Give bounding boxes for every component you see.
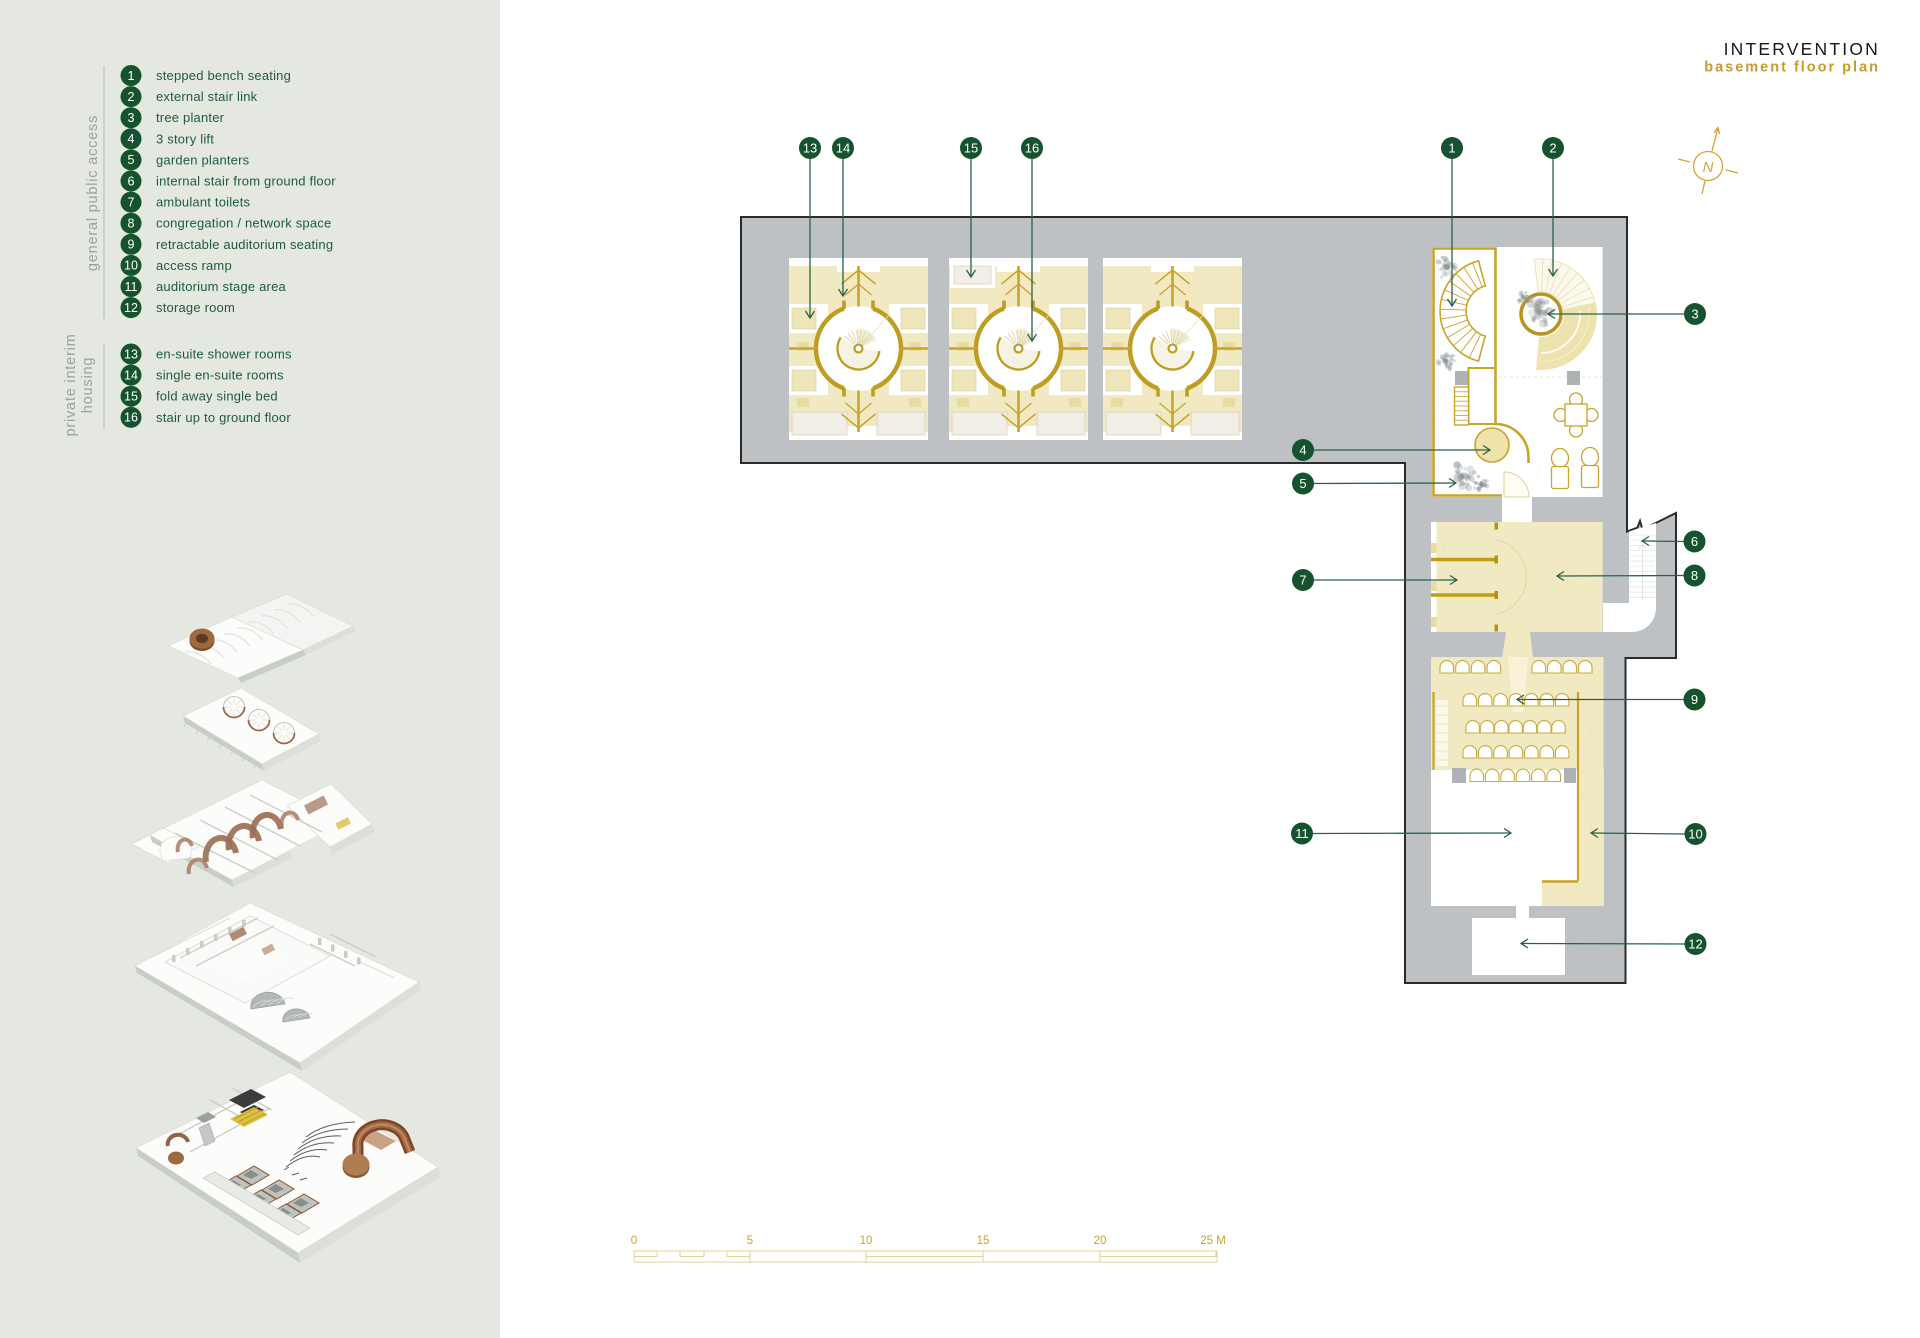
svg-text:13: 13 xyxy=(124,347,138,361)
svg-text:12: 12 xyxy=(124,301,138,315)
svg-text:16: 16 xyxy=(1025,141,1039,156)
svg-text:N: N xyxy=(1703,159,1714,176)
svg-text:2: 2 xyxy=(1549,141,1556,156)
svg-text:14: 14 xyxy=(124,368,138,382)
svg-text:5: 5 xyxy=(1299,476,1306,491)
svg-text:20: 20 xyxy=(1094,1235,1107,1247)
svg-text:congregation / network space: congregation / network space xyxy=(156,216,331,231)
svg-text:external stair link: external stair link xyxy=(156,89,258,104)
svg-text:stepped bench seating: stepped bench seating xyxy=(156,68,291,83)
svg-text:9: 9 xyxy=(128,238,135,252)
svg-text:15: 15 xyxy=(977,1235,990,1247)
svg-text:stair up to ground floor: stair up to ground floor xyxy=(156,410,291,425)
svg-text:14: 14 xyxy=(836,141,850,156)
svg-text:retractable auditorium seating: retractable auditorium seating xyxy=(156,237,333,252)
svg-text:11: 11 xyxy=(1295,826,1309,841)
svg-text:housing: housing xyxy=(80,357,96,413)
svg-text:INTERVENTION: INTERVENTION xyxy=(1724,39,1880,59)
svg-text:4: 4 xyxy=(1299,443,1306,458)
svg-text:fold away single bed: fold away single bed xyxy=(156,389,278,404)
svg-text:25 M: 25 M xyxy=(1200,1235,1226,1247)
svg-text:7: 7 xyxy=(128,195,135,209)
svg-text:8: 8 xyxy=(128,217,135,231)
svg-text:single en-suite rooms: single en-suite rooms xyxy=(156,368,284,383)
svg-text:access ramp: access ramp xyxy=(156,258,232,273)
svg-text:7: 7 xyxy=(1299,573,1306,588)
svg-text:private interim: private interim xyxy=(63,333,79,436)
svg-text:8: 8 xyxy=(1691,568,1698,583)
svg-text:15: 15 xyxy=(124,390,138,404)
svg-text:6: 6 xyxy=(128,174,135,188)
svg-text:10: 10 xyxy=(1688,827,1702,842)
svg-text:storage room: storage room xyxy=(156,300,235,315)
svg-text:4: 4 xyxy=(128,132,135,146)
svg-text:en-suite shower rooms: en-suite shower rooms xyxy=(156,347,292,362)
svg-text:2: 2 xyxy=(128,90,135,104)
svg-text:15: 15 xyxy=(964,141,978,156)
svg-text:auditorium stage area: auditorium stage area xyxy=(156,279,287,294)
svg-text:16: 16 xyxy=(124,411,138,425)
svg-text:3: 3 xyxy=(128,111,135,125)
svg-text:3: 3 xyxy=(1691,307,1698,322)
svg-text:5: 5 xyxy=(128,153,135,167)
svg-text:garden planters: garden planters xyxy=(156,152,250,167)
svg-text:12: 12 xyxy=(1688,937,1702,952)
svg-text:6: 6 xyxy=(1691,534,1698,549)
svg-text:basement floor plan: basement floor plan xyxy=(1704,60,1880,76)
svg-text:13: 13 xyxy=(803,141,817,156)
svg-text:ambulant toilets: ambulant toilets xyxy=(156,195,251,210)
svg-text:10: 10 xyxy=(124,259,138,273)
svg-text:tree planter: tree planter xyxy=(156,110,225,125)
svg-text:11: 11 xyxy=(125,280,138,294)
svg-text:9: 9 xyxy=(1691,692,1698,707)
svg-text:internal stair from ground flo: internal stair from ground floor xyxy=(156,174,336,189)
svg-text:3 story lift: 3 story lift xyxy=(156,131,214,146)
svg-text:general public access: general public access xyxy=(85,115,101,271)
svg-text:0: 0 xyxy=(631,1235,637,1247)
svg-text:5: 5 xyxy=(747,1235,753,1247)
svg-text:1: 1 xyxy=(1448,141,1455,156)
svg-text:10: 10 xyxy=(860,1235,873,1247)
svg-text:1: 1 xyxy=(128,69,135,83)
